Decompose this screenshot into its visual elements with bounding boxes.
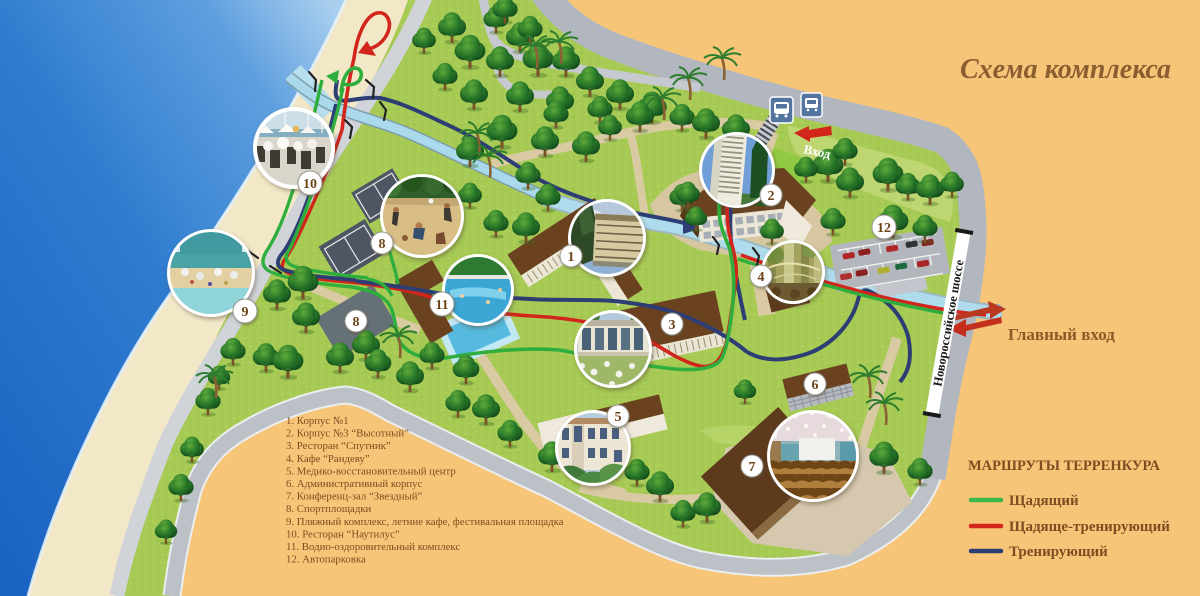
svg-text:Схема комплекса: Схема комплекса: [960, 54, 1171, 85]
svg-text:1. Корпус №1: 1. Корпус №1: [286, 415, 349, 427]
svg-text:3: 3: [669, 318, 676, 333]
svg-text:10: 10: [303, 177, 317, 192]
svg-text:6: 6: [812, 378, 819, 393]
svg-text:3. Ресторан “Спутник”: 3. Ресторан “Спутник”: [286, 440, 391, 452]
svg-text:6. Административный корпус: 6. Административный корпус: [286, 478, 423, 490]
svg-text:9. Пляжный комплекс, летние ка: 9. Пляжный комплекс, летние кафе, фестив…: [286, 516, 564, 528]
svg-text:4. Кафе “Рандеву”: 4. Кафе “Рандеву”: [286, 453, 370, 465]
svg-text:11. Водио-оздоровительный комп: 11. Водио-оздоровительный комплекс: [286, 541, 460, 553]
svg-text:12. Автопарковка: 12. Автопарковка: [286, 554, 366, 566]
svg-text:7: 7: [749, 460, 756, 475]
svg-text:2: 2: [768, 189, 775, 204]
svg-text:9: 9: [242, 305, 249, 320]
svg-text:5: 5: [615, 410, 622, 425]
svg-text:4: 4: [758, 270, 765, 285]
svg-text:7. Конференц-зал “Звездный”: 7. Конференц-зал “Звездный”: [286, 491, 423, 503]
svg-text:Щадяще-тренирующий: Щадяще-тренирующий: [1009, 519, 1170, 535]
svg-text:8. Спортплощадки: 8. Спортплощадки: [286, 503, 372, 515]
svg-text:8: 8: [353, 315, 360, 330]
svg-text:МАРШРУТЫ ТЕРРЕНКУРА: МАРШРУТЫ ТЕРРЕНКУРА: [968, 458, 1160, 474]
svg-text:2. Корпус №3 “Высотный”: 2. Корпус №3 “Высотный”: [286, 428, 409, 440]
svg-text:11: 11: [435, 298, 448, 313]
svg-text:Щадящий: Щадящий: [1009, 493, 1079, 509]
svg-text:8: 8: [379, 237, 386, 252]
svg-text:Тренирующий: Тренирующий: [1009, 544, 1108, 560]
svg-text:12: 12: [877, 221, 891, 236]
svg-text:1: 1: [568, 250, 575, 265]
svg-text:10. Ресторан “Наутилус”: 10. Ресторан “Наутилус”: [286, 528, 400, 540]
svg-text:Главный вход: Главный вход: [1008, 325, 1115, 344]
svg-text:5. Медико-восстановительный це: 5. Медико-восстановительный центр: [286, 465, 456, 477]
